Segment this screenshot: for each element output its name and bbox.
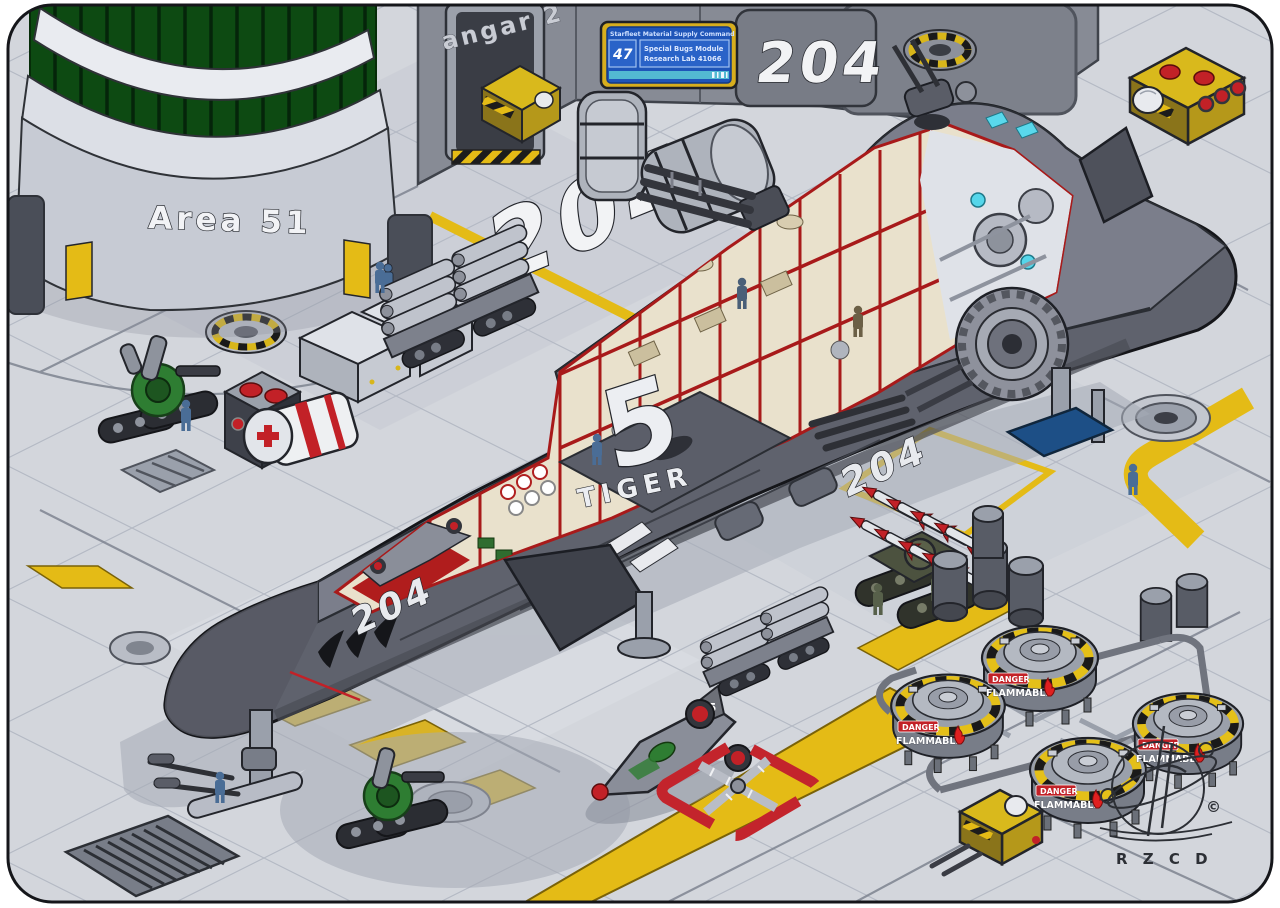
screen-bay-code: 47 <box>612 47 633 63</box>
flammable-label: FLAMMABLE <box>896 736 962 747</box>
jet-nose-cone <box>592 784 608 800</box>
radar-dish-icon <box>956 82 976 102</box>
copyright-symbol: © <box>1206 798 1221 816</box>
glass-dome-icon <box>1005 796 1027 816</box>
hangar-scene: 204 angar 2 204 Starfleet Material Suppl… <box>0 0 1280 908</box>
control-tower: Area 51 <box>8 0 440 338</box>
illustration-canvas: 204 angar 2 204 Starfleet Material Suppl… <box>0 0 1280 908</box>
tower-door <box>8 196 44 314</box>
wall-door-number-panel: 204 <box>736 10 890 106</box>
screen-line2: Research Lab 41066 <box>644 55 722 63</box>
round-hatch-icon <box>110 632 170 664</box>
dome-light-icon <box>535 92 553 108</box>
screen-header: Starfleet Material Supply Command <box>610 31 735 38</box>
flammable-label: FLAMMABLE <box>1034 800 1100 811</box>
danger-label: DANGER <box>902 723 940 732</box>
info-screen: Starfleet Material Supply Command 47 Spe… <box>601 22 737 88</box>
danger-label: DANGER <box>1040 787 1078 796</box>
wall-door-number: 204 <box>752 31 890 96</box>
flammable-label: FLAMMABLE <box>986 688 1052 699</box>
coolant-glow-icon <box>971 193 985 207</box>
signature-initials: R Z C D <box>1116 850 1213 868</box>
danger-label: DANGER <box>992 675 1030 684</box>
building-name: Area 51 <box>148 200 312 242</box>
screen-line1: Special Bugs Module <box>644 45 724 53</box>
hazard-stripe-icon <box>452 150 540 164</box>
